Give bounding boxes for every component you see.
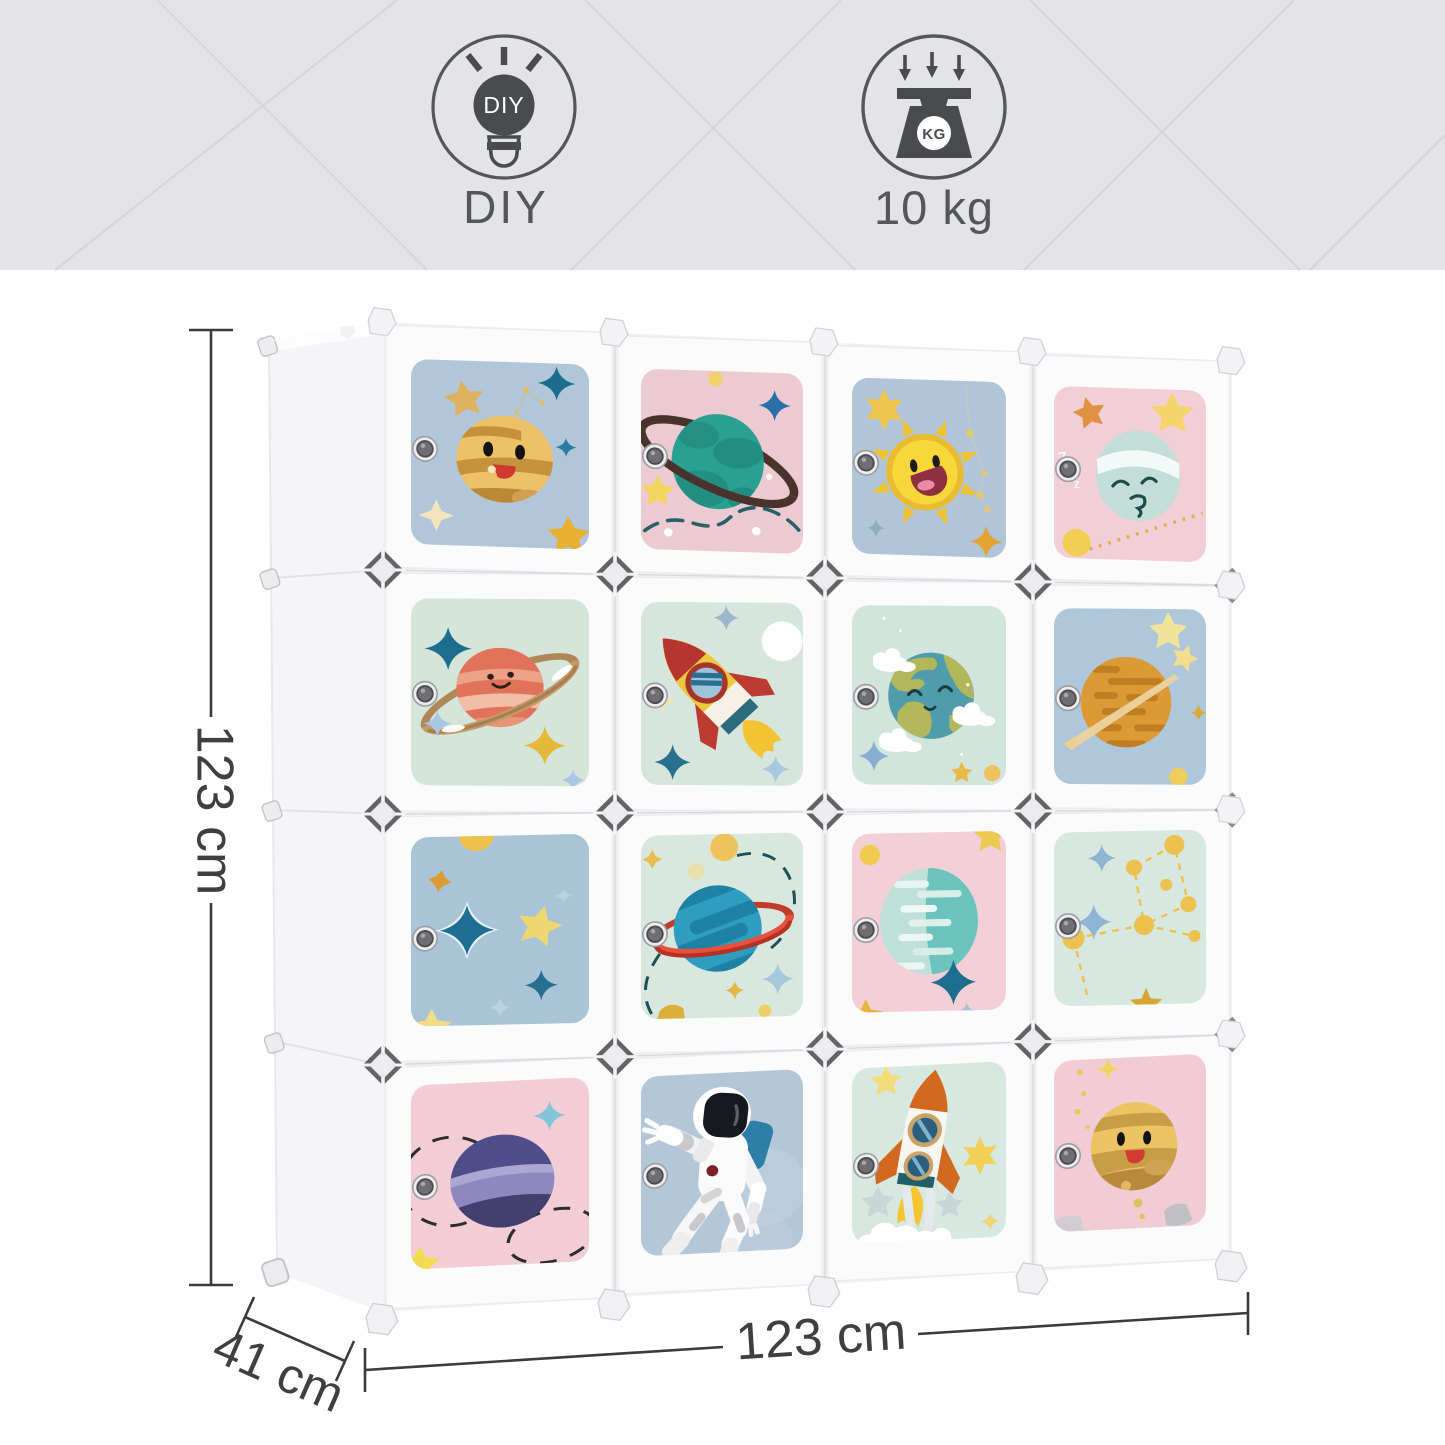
svg-text:DIY: DIY (483, 92, 524, 118)
svg-text:41 cm: 41 cm (205, 1318, 352, 1424)
svg-text:10 kg: 10 kg (874, 181, 994, 234)
svg-text:KG: KG (922, 126, 946, 143)
svg-text:DIY: DIY (463, 181, 549, 233)
svg-text:123 cm: 123 cm (734, 1303, 908, 1372)
svg-text:123 cm: 123 cm (185, 725, 243, 896)
